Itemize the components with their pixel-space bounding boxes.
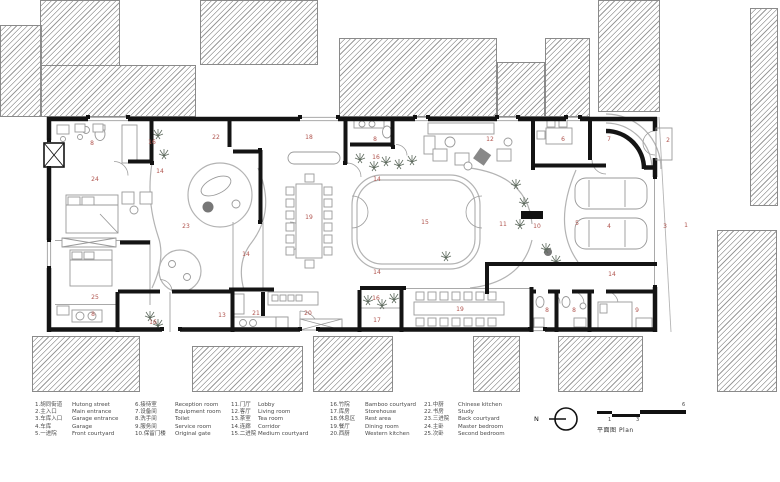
- legend-item-en: Garage entrance: [72, 416, 118, 423]
- legend-column: 11.门厅Lobby12.客厅Living room13.茶室Tea room1…: [231, 402, 308, 438]
- room-label-2: 2: [666, 138, 670, 144]
- scale-tick: 1: [608, 417, 611, 423]
- legend-item-en: Rest area: [365, 416, 391, 423]
- room-label-20: 20: [304, 311, 312, 317]
- room-label-13: 13: [218, 313, 226, 319]
- legend-column: 6.接待室Reception room7.设备间Equipment room8.…: [135, 402, 221, 438]
- legend-item-zh: 24.主卧: [424, 424, 458, 431]
- room-label-25: 25: [91, 295, 99, 301]
- room-label-5: 5: [575, 221, 579, 227]
- legend-item-zh: 9.服务间: [135, 424, 175, 431]
- legend-item: 3.车库入口Garage entrance: [35, 416, 118, 423]
- legend-item-zh: 3.车库入口: [35, 416, 72, 423]
- scale-bar: 平面图 Plan 136: [597, 405, 697, 439]
- room-label-8: 8: [373, 137, 377, 143]
- legend-item-en: Storehouse: [365, 409, 396, 416]
- legend-item-en: Study: [458, 409, 474, 416]
- room-label-8: 8: [572, 308, 576, 314]
- legend-item-en: Corridor: [258, 424, 280, 431]
- legend-item-en: Reception room: [175, 402, 218, 409]
- legend-item: 9.服务间Service room: [135, 424, 221, 431]
- legend-item-zh: 8.洗手间: [135, 416, 175, 423]
- room-label-15: 15: [421, 220, 429, 226]
- legend-item-en: Front courtyard: [72, 431, 114, 438]
- room-label-19: 19: [456, 307, 464, 313]
- legend-item: 4.车库Garage: [35, 424, 118, 431]
- legend-column: 1.胡同街道Hutong street2.主入口Main entrance3.车…: [35, 402, 118, 438]
- room-label-17: 17: [373, 318, 381, 324]
- legend-item-zh: 23.三进院: [424, 416, 458, 423]
- legend-item-zh: 19.餐厅: [330, 424, 365, 431]
- room-label-7: 7: [607, 137, 611, 143]
- room-label-22: 22: [212, 135, 220, 141]
- room-label-9: 9: [635, 308, 639, 314]
- room-label-18: 18: [305, 135, 313, 141]
- plan-title: 平面图 Plan: [597, 425, 634, 434]
- north-label: N: [534, 415, 539, 423]
- legend-item-en: Toilet: [175, 416, 189, 423]
- room-label-4: 4: [607, 224, 611, 230]
- room-label-19: 19: [305, 215, 313, 221]
- legend-item: 8.洗手间Toilet: [135, 416, 221, 423]
- legend-item-en: Main entrance: [72, 409, 111, 416]
- legend-item-zh: 13.茶室: [231, 416, 258, 423]
- room-label-21: 21: [252, 311, 260, 317]
- plan-title-en: Plan: [619, 427, 634, 434]
- legend-item-en: Service room: [175, 424, 211, 431]
- room-label-14: 14: [242, 252, 250, 258]
- scale-bar-segment: [640, 410, 686, 414]
- room-label-8: 8: [91, 312, 95, 318]
- room-label-16: 16: [149, 320, 157, 326]
- legend-item-en: Chinese kitchen: [458, 402, 502, 409]
- legend-item-zh: 25.次卧: [424, 431, 458, 438]
- legend-item: 15.二进院Medium courtyard: [231, 431, 308, 438]
- north-arrow: N: [530, 403, 590, 437]
- legend-item-zh: 15.二进院: [231, 431, 258, 438]
- room-label-3: 3: [663, 224, 667, 230]
- legend-item-zh: 5.一进院: [35, 431, 72, 438]
- legend-item: 23.三进院Back courtyard: [424, 416, 505, 423]
- legend-item-zh: 18.休息区: [330, 416, 365, 423]
- legend-item-en: Lobby: [258, 402, 275, 409]
- legend-column: 21.中厨Chinese kitchen22.书房Study23.三进院Back…: [424, 402, 505, 438]
- room-label-16: 16: [148, 140, 156, 146]
- legend-item-en: Second bedroom: [458, 431, 505, 438]
- legend-item-zh: 14.连廊: [231, 424, 258, 431]
- legend-item: 24.主卧Master bedroom: [424, 424, 505, 431]
- legend-item-en: Master bedroom: [458, 424, 503, 431]
- legend-item-en: Tea room: [258, 416, 283, 423]
- legend-item-en: Original gate: [175, 431, 211, 438]
- room-label-12: 12: [486, 137, 494, 143]
- legend-item-zh: 4.车库: [35, 424, 72, 431]
- legend-item-en: Western kitchen: [365, 431, 410, 438]
- legend-item-en: Back courtyard: [458, 416, 500, 423]
- legend-item-en: Garage: [72, 424, 92, 431]
- room-label-14: 14: [373, 270, 381, 276]
- room-label-10: 10: [533, 224, 541, 230]
- room-label-14: 14: [608, 272, 616, 278]
- floor-plan-sheet: 1234567888889101112131414141414151616161…: [0, 0, 780, 482]
- scale-bar-segment: [597, 411, 612, 414]
- legend-item-zh: 10.保留门楼: [135, 431, 175, 438]
- legend-item-zh: 20.西厨: [330, 431, 365, 438]
- legend-item-en: Hutong street: [72, 402, 110, 409]
- legend-column: 16.竹院Bamboo courtyard17.库房Storehouse18.休…: [330, 402, 416, 438]
- legend-item: 10.保留门楼Original gate: [135, 431, 221, 438]
- legend-item: 20.西厨Western kitchen: [330, 431, 416, 438]
- room-label-24: 24: [91, 177, 99, 183]
- room-label-16: 16: [372, 296, 380, 302]
- room-label-16: 16: [372, 155, 380, 161]
- legend-item-en: Living room: [258, 409, 290, 416]
- legend-item: 5.一进院Front courtyard: [35, 431, 118, 438]
- room-label-23: 23: [182, 224, 190, 230]
- legend-item: 19.餐厅Dining room: [330, 424, 416, 431]
- legend-item-en: Medium courtyard: [258, 431, 308, 438]
- room-label-8: 8: [545, 308, 549, 314]
- legend-item-en: Dining room: [365, 424, 399, 431]
- legend-item: 25.次卧Second bedroom: [424, 431, 505, 438]
- room-label-11: 11: [499, 222, 507, 228]
- legend-item-en: Equipment room: [175, 409, 221, 416]
- room-label-14: 14: [156, 169, 164, 175]
- scale-tick: 6: [682, 402, 685, 408]
- room-label-6: 6: [561, 137, 565, 143]
- legend-item: 13.茶室Tea room: [231, 416, 308, 423]
- room-label-1: 1: [684, 223, 688, 229]
- room-label-8: 8: [90, 141, 94, 147]
- legend-item: 18.休息区Rest area: [330, 416, 416, 423]
- scale-tick: 3: [636, 417, 639, 423]
- legend-item-en: Bamboo courtyard: [365, 402, 416, 409]
- legend-item: 14.连廊Corridor: [231, 424, 308, 431]
- plan-title-zh: 平面图: [597, 427, 617, 434]
- room-label-14: 14: [373, 177, 381, 183]
